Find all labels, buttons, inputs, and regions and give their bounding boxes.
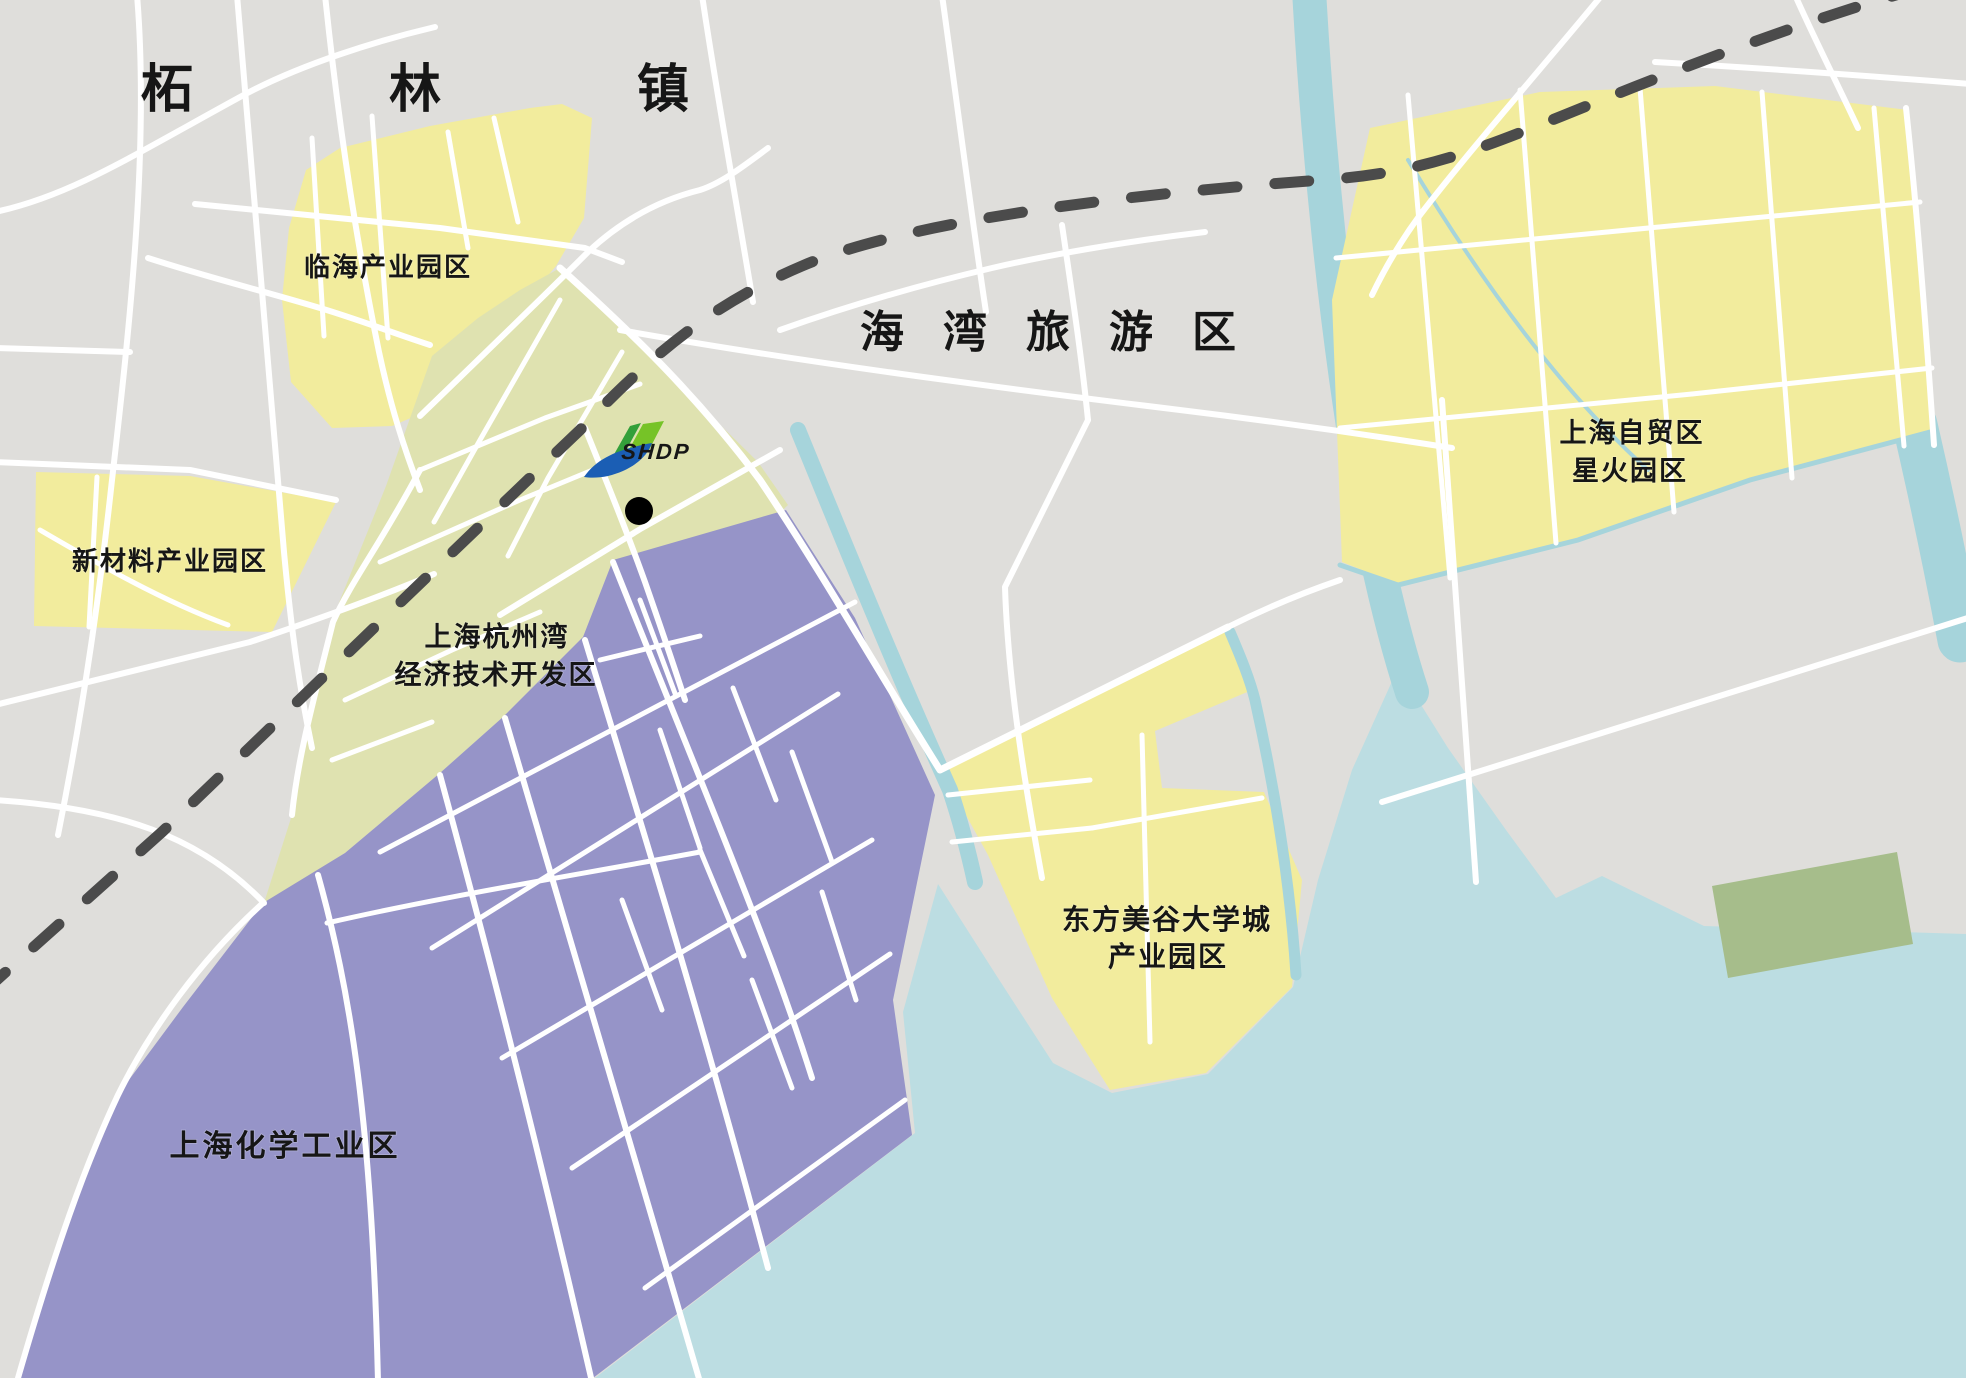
- label-haiwan-district: 海湾旅游区: [860, 307, 1275, 357]
- map-canvas[interactable]: SHDP 柘林镇 海湾旅游区 临海产业园区 新材料产业园区 上海杭州湾 经济技术…: [0, 0, 1966, 1378]
- label-zone-zimao-line1: 上海自贸区: [1560, 417, 1705, 448]
- site-marker-dot: [625, 497, 653, 525]
- logo-text: SHDP: [621, 439, 692, 464]
- label-zone-zimao-line2: 星火园区: [1572, 456, 1688, 486]
- label-zhelin-town: 柘林镇: [141, 61, 885, 119]
- label-zone-kaifaqu-line2: 经济技术开发区: [395, 659, 598, 690]
- label-zone-meigu-line2: 产业园区: [1108, 941, 1228, 972]
- label-zone-kaifaqu-line1: 上海杭州湾: [425, 621, 570, 652]
- label-zone-xincailiao: 新材料产业园区: [72, 546, 268, 576]
- label-zone-huagong: 上海化学工业区: [170, 1129, 401, 1163]
- label-zone-linhai: 临海产业园区: [304, 252, 472, 282]
- label-zone-meigu-line1: 东方美谷大学城: [1062, 903, 1272, 935]
